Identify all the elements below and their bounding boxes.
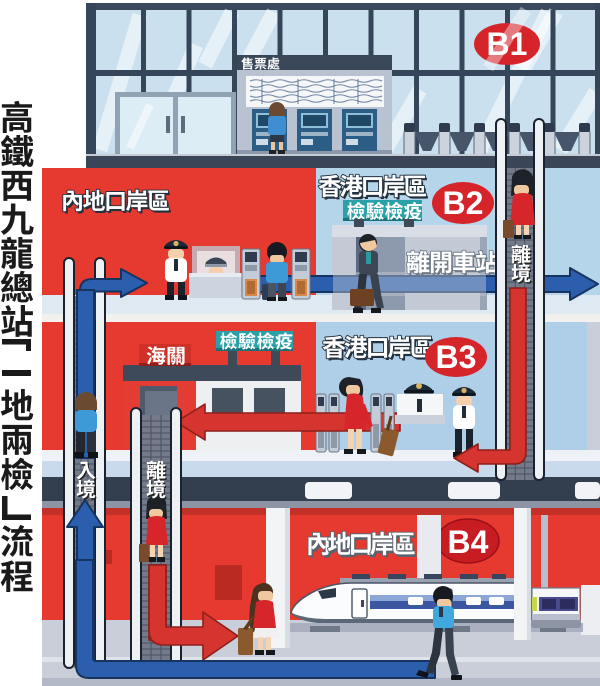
svg-text:B3: B3 [436,339,477,375]
svg-text:B2: B2 [443,185,484,221]
svg-text:B4: B4 [448,524,489,560]
